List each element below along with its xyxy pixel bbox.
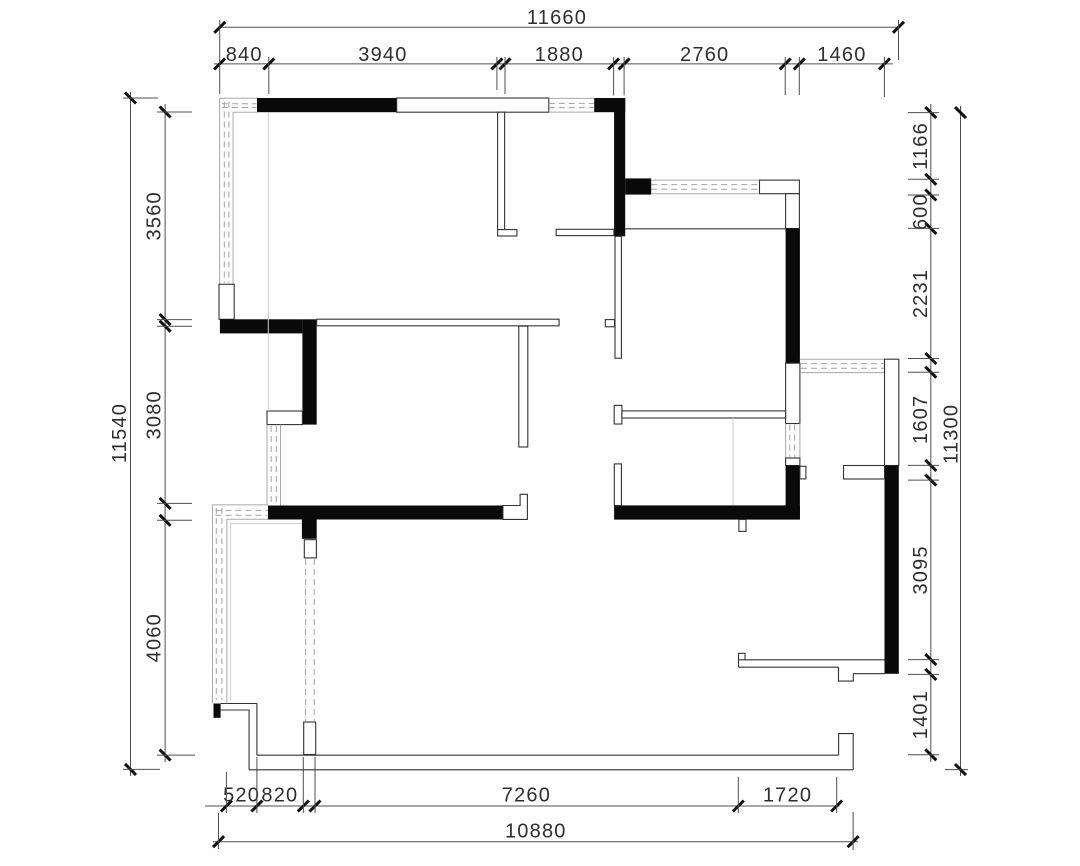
svg-text:1880: 1880: [535, 44, 584, 66]
svg-text:1607: 1607: [910, 395, 932, 444]
svg-text:3080: 3080: [144, 390, 166, 439]
svg-text:7260: 7260: [502, 785, 551, 807]
svg-text:1401: 1401: [910, 690, 932, 739]
svg-text:4060: 4060: [144, 613, 166, 662]
svg-text:11540: 11540: [109, 403, 131, 463]
svg-text:3560: 3560: [144, 191, 166, 240]
svg-text:11300: 11300: [941, 404, 963, 464]
svg-text:2760: 2760: [680, 44, 729, 66]
svg-text:1166: 1166: [910, 122, 932, 170]
svg-text:1460: 1460: [817, 44, 866, 66]
svg-text:11660: 11660: [527, 7, 587, 29]
svg-text:3940: 3940: [358, 44, 407, 66]
svg-text:1720: 1720: [763, 785, 812, 807]
svg-text:10880: 10880: [505, 821, 567, 843]
svg-text:520: 520: [223, 785, 260, 807]
svg-text:2231: 2231: [910, 269, 932, 318]
svg-text:840: 840: [226, 44, 263, 66]
svg-text:600: 600: [910, 193, 932, 230]
svg-text:3095: 3095: [910, 545, 932, 594]
svg-text:820: 820: [261, 785, 298, 807]
